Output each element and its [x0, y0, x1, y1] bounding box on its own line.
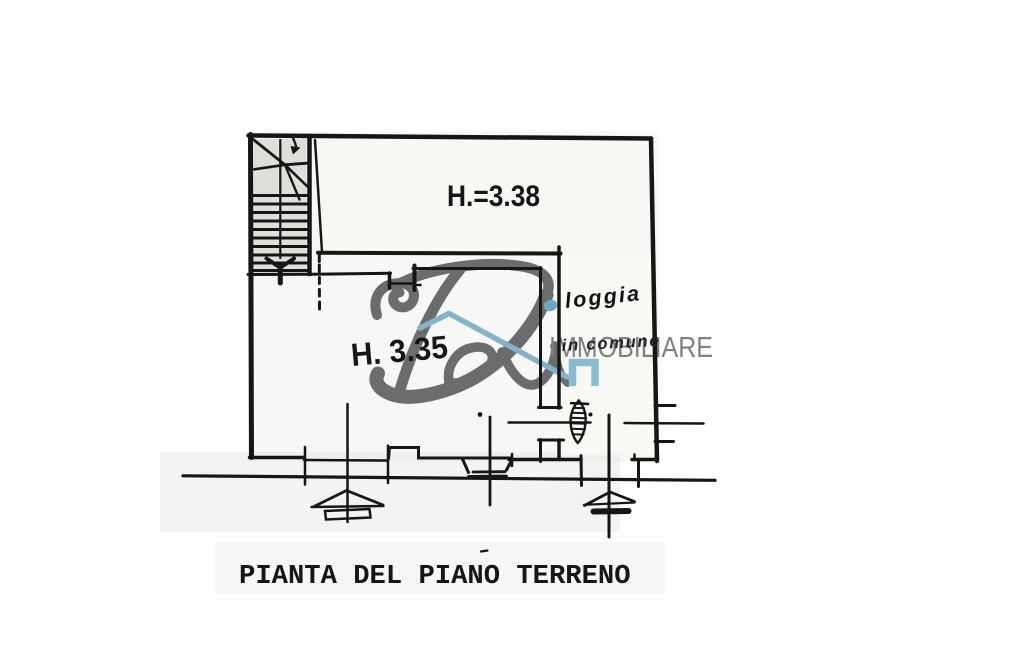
svg-text:PIANTA DEL PIANO TERRENO: PIANTA DEL PIANO TERRENO: [239, 561, 631, 592]
svg-text:H.=3.38: H.=3.38: [447, 180, 540, 213]
